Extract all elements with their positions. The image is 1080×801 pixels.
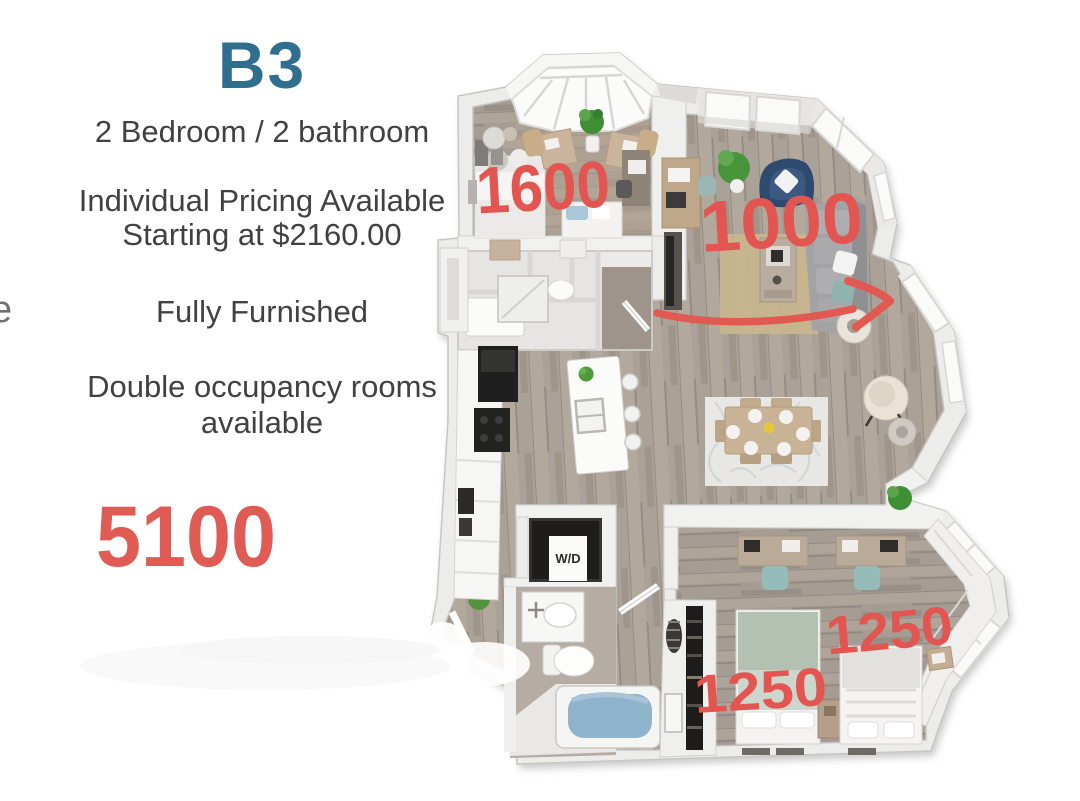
svg-text:5100: 5100 xyxy=(96,489,276,585)
svg-text:1000: 1000 xyxy=(697,178,865,268)
svg-text:1600: 1600 xyxy=(474,147,612,228)
svg-text:1250: 1250 xyxy=(692,657,828,725)
svg-text:e: e xyxy=(0,289,12,331)
svg-text:1250: 1250 xyxy=(823,596,955,667)
